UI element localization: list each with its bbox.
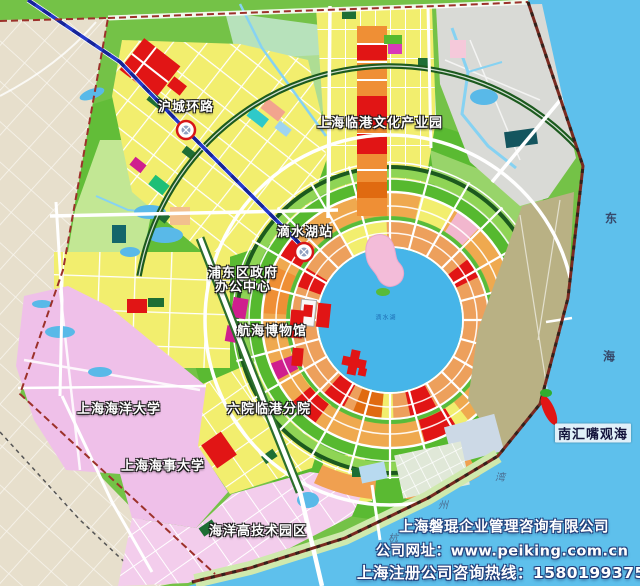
footer-website-label: 公司网址： (376, 544, 451, 560)
footer-website-url: www.peiking.com.cn (451, 544, 629, 560)
label-pudong-gov-line2: 办公中心 (215, 280, 271, 295)
label-ocean-university: 上海海洋大学 (77, 403, 161, 417)
dishui-lake-station-marker-icon (295, 243, 313, 261)
lingang-planning-map: 沪城环路 上海临港文化产业园 滴水湖站 浦东区政府办公中心 航海博物馆 上海海洋… (0, 0, 640, 586)
label-nanhuizui-seaview: 南汇嘴观海 (555, 424, 631, 443)
footer-company-name: 上海磐琨企业管理咨询有限公司 (399, 516, 609, 537)
bay-text-3: 湾 (495, 469, 505, 484)
label-pudong-gov-center: 浦东区政府办公中心 (208, 267, 278, 295)
label-pudong-gov-line1: 浦东区政府 (208, 266, 278, 281)
label-sixth-hospital-branch: 六院临港分院 (227, 403, 311, 417)
footer-website: 公司网址：www.peiking.com.cn (376, 540, 629, 561)
lake-name-text: 滴水湖 (375, 313, 396, 322)
label-dishui-lake-station: 滴水湖站 (277, 226, 333, 240)
label-hucheng-ring-road: 沪城环路 (158, 101, 214, 115)
sea-text-east: 东 (605, 210, 617, 227)
bay-text-2: 州 (438, 497, 448, 512)
hucheng-road-marker-icon (177, 121, 195, 139)
label-marine-hightech-park: 海洋高技术园区 (209, 525, 307, 539)
sea-text-sea: 海 (603, 348, 615, 365)
label-maritime-university: 上海海事大学 (121, 460, 205, 474)
label-culture-park: 上海临港文化产业园 (317, 117, 443, 131)
label-maritime-museum: 航海博物馆 (237, 325, 307, 339)
map-canvas (0, 0, 640, 586)
footer-hotline: 上海注册公司咨询热线：15801993753 (357, 561, 640, 583)
